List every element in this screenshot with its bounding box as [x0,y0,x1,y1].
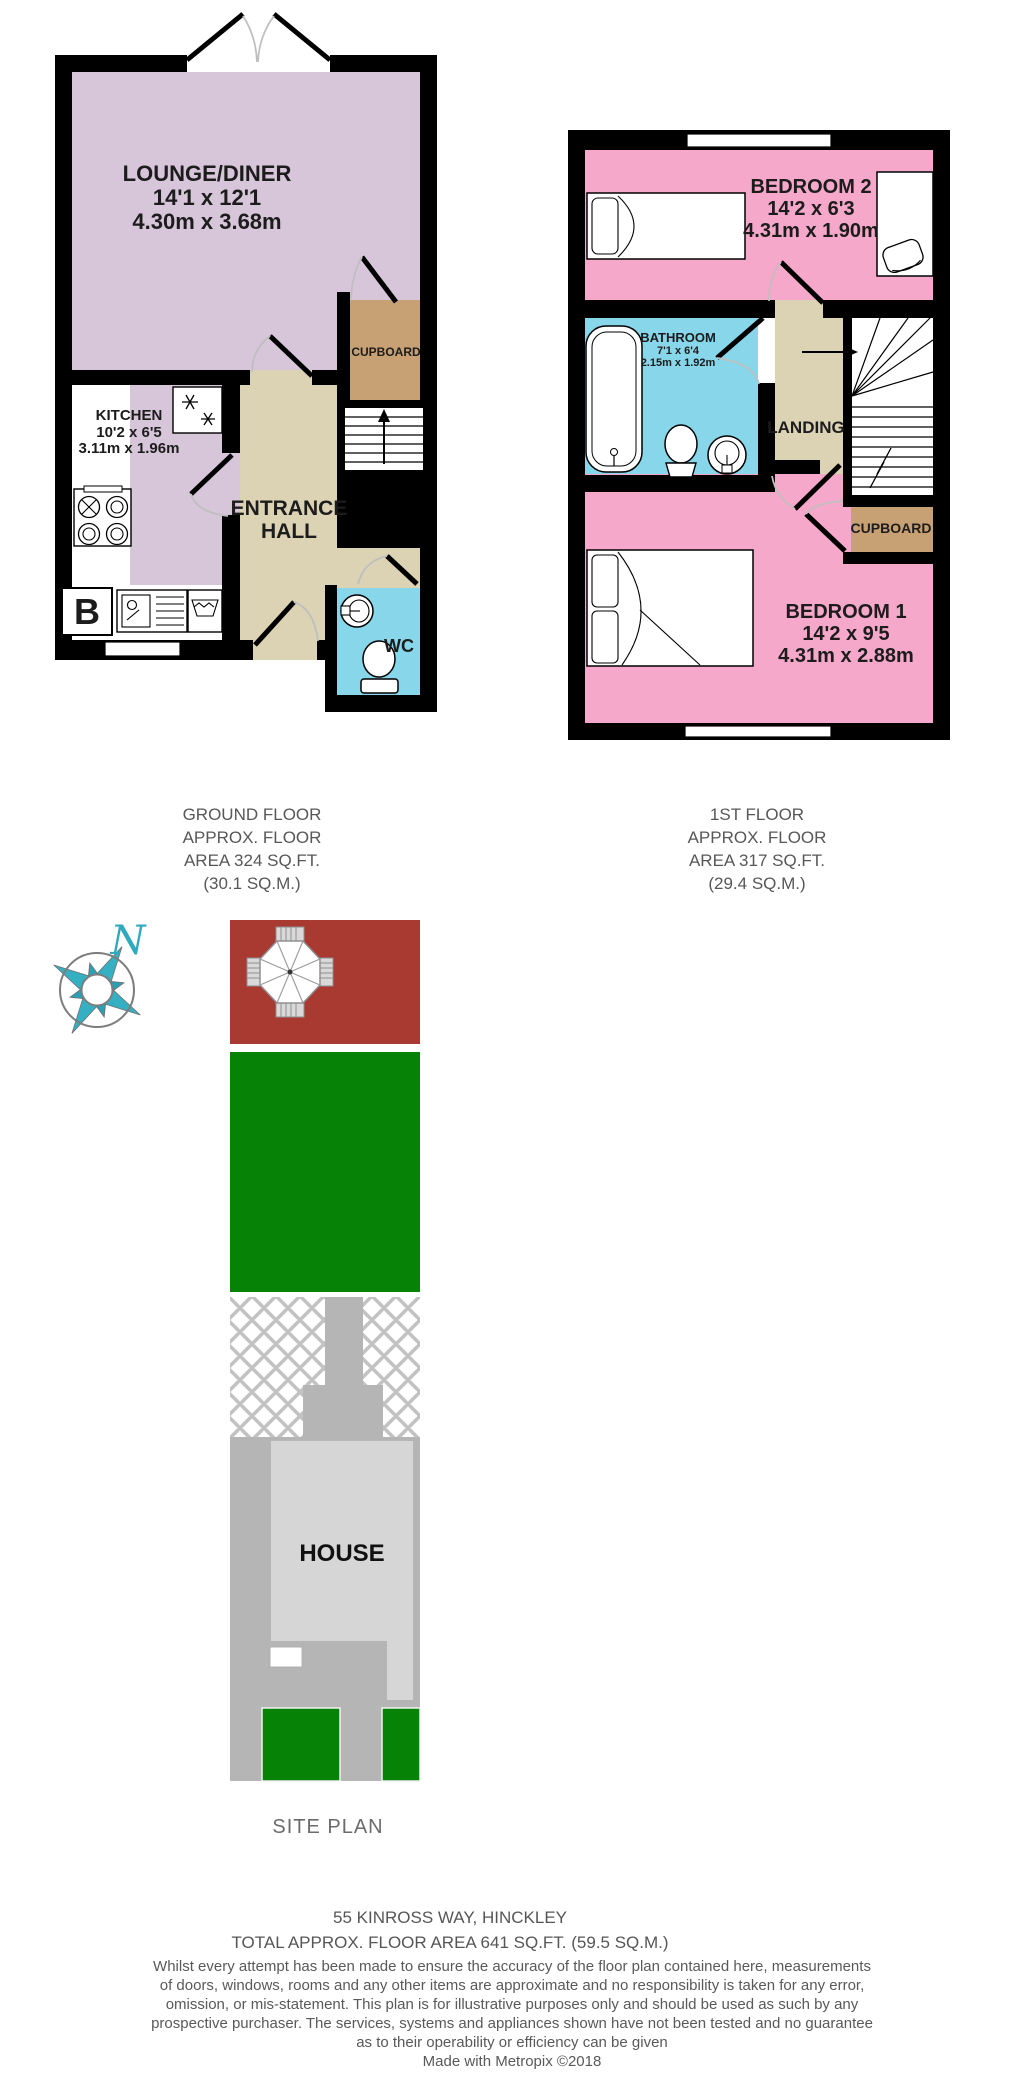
first-cupboard-label: CUPBOARD [851,521,932,536]
sink-icon [117,590,187,632]
bedroom1-size-metric: 4.31m x 2.88m [778,645,914,667]
french-doors-icon [187,14,330,62]
footer-heading: 55 KINROSS WAY, HINCKLEY TOTAL APPROX. F… [231,1905,668,1955]
disclaimer-line-4: prospective purchaser. The services, sys… [151,2014,873,2033]
disclaimer-line-3: omission, or mis-statement. This plan is… [151,1995,873,2014]
bedroom1-size-imperial: 14'2 x 9'5 [778,623,914,645]
ground-floor-caption: GROUND FLOOR APPROX. FLOOR AREA 324 SQ.F… [183,803,322,895]
bathroom-label: BATHROOM 7'1 x 6'4 2.15m x 1.92m [640,331,716,369]
bedroom2-label: BEDROOM 2 14'2 x 6'3 4.31m x 1.90m [743,176,879,242]
kitchen-label: KITCHEN 10'2 x 6'5 3.11m x 1.96m [79,408,180,458]
first-caption-line4: (29.4 SQ.M.) [688,872,827,895]
ground-caption-line4: (30.1 SQ.M.) [183,872,322,895]
disclaimer: Whilst every attempt has been made to en… [151,1957,873,2071]
front-garden-right [382,1708,420,1781]
washing-machine-icon [188,590,222,632]
entrance-hall-line2: HALL [231,520,348,543]
ground-caption-line3: AREA 324 SQ.FT. [183,849,322,872]
ground-caption-line1: GROUND FLOOR [183,803,322,826]
kitchen-name: KITCHEN [79,408,180,425]
ground-stairs-icon [345,408,423,470]
bathroom-size-imperial: 7'1 x 6'4 [640,345,716,357]
landing-area [775,318,843,475]
site-plan-graphic [230,920,420,1781]
landing-label: LANDING [767,419,844,438]
porch [270,1647,302,1667]
lounge-size-metric: 4.30m x 3.68m [123,210,292,234]
boiler-label: B [74,592,100,632]
bedroom2-size-imperial: 14'2 x 6'3 [743,198,879,220]
bathroom-name: BATHROOM [640,331,716,345]
single-bed-icon [587,193,745,259]
lounge-size-imperial: 14'1 x 12'1 [123,186,292,210]
double-bed-icon [587,550,753,666]
bedroom2-size-metric: 4.31m x 1.90m [743,220,879,242]
kitchen-size-metric: 3.11m x 1.96m [79,441,180,458]
metropix-credit: Made with Metropix ©2018 [151,2052,873,2071]
first-caption-line1: 1ST FLOOR [688,803,827,826]
kitchen-size-imperial: 10'2 x 6'5 [79,425,180,442]
house-label: HOUSE [299,1540,384,1568]
total-floor-area: TOTAL APPROX. FLOOR AREA 641 SQ.FT. (59.… [231,1930,668,1955]
site-plan-caption: SITE PLAN [272,1816,383,1839]
wc-basin-icon [341,595,373,627]
bedroom2-window [687,134,831,147]
fridge-freezer-icon [173,387,222,433]
wc-label: WC [384,637,414,657]
hob-icon [74,486,131,546]
bedroom2-name: BEDROOM 2 [743,176,879,198]
lounge-name: LOUNGE/DINER [123,162,292,186]
property-address: 55 KINROSS WAY, HINCKLEY [231,1905,668,1930]
first-caption-line3: AREA 317 SQ.FT. [688,849,827,872]
bedroom1-label: BEDROOM 1 14'2 x 9'5 4.31m x 2.88m [778,601,914,667]
disclaimer-line-1: Whilst every attempt has been made to en… [151,1957,873,1976]
bathroom-size-metric: 2.15m x 1.92m [640,357,716,369]
floorplan-graphic [0,0,1024,2073]
bedroom1-name: BEDROOM 1 [778,601,914,623]
disclaimer-line-2: of doors, windows, rooms and any other i… [151,1976,873,1995]
bedroom1-window [685,726,831,737]
compass-north-label: N [111,918,146,964]
ground-caption-line2: APPROX. FLOOR [183,826,322,849]
front-garden-left [262,1708,340,1781]
toilet-icon [665,425,697,477]
ground-cupboard-label: CUPBOARD [351,346,420,359]
lounge-label: LOUNGE/DINER 14'1 x 12'1 4.30m x 3.68m [123,162,292,235]
first-floor-caption: 1ST FLOOR APPROX. FLOOR AREA 317 SQ.FT. … [688,803,827,895]
basin-icon [708,436,746,474]
lawn-area [230,1052,420,1292]
bath-icon [586,326,642,472]
entrance-hall-line1: ENTRANCE [231,497,348,520]
entrance-hall-label: ENTRANCE HALL [231,497,348,543]
first-caption-line2: APPROX. FLOOR [688,826,827,849]
kitchen-window [105,642,180,656]
disclaimer-line-5: as to their operability or efficiency ca… [151,2033,873,2052]
ground-floor-plan [55,14,437,712]
floorplan-page: LOUNGE/DINER 14'1 x 12'1 4.30m x 3.68m K… [0,0,1024,2073]
